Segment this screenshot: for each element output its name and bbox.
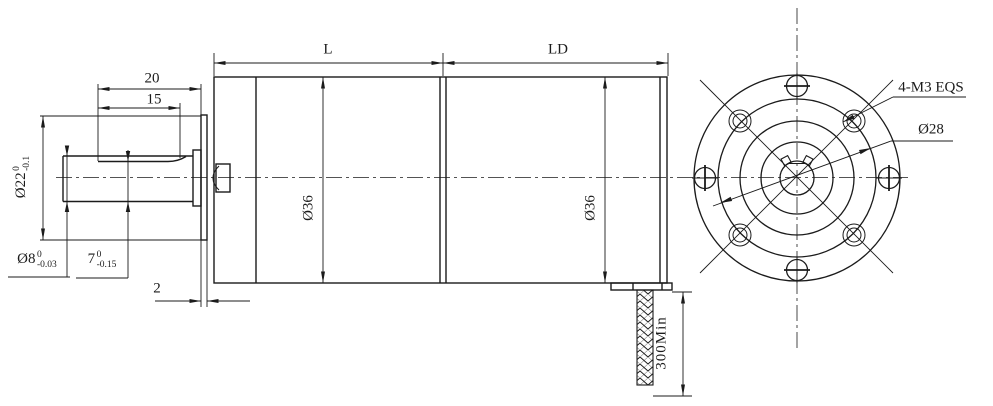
dim-label-15: 15 xyxy=(147,93,162,108)
dim-label-LD: LD xyxy=(548,43,568,58)
screw-bottom xyxy=(784,257,810,283)
dim-label-2: 2 xyxy=(153,282,161,297)
dim-label-dia36-gear: Ø36 xyxy=(302,195,317,221)
side-view-dimensions xyxy=(8,53,692,396)
bearing-dome xyxy=(213,164,230,192)
dim-label-dia8: Ø80-0.03 xyxy=(17,250,57,270)
shaft-washer xyxy=(193,150,201,206)
rear-terminal-block xyxy=(611,283,672,290)
dim-label-300min: 300Min xyxy=(655,316,670,370)
engineering-drawing-gearmotor: L LD 20 15 2 Ø220-0.1 Ø80-0.03 70-0.15 Ø… xyxy=(0,0,993,406)
screw-right xyxy=(876,165,902,191)
label-4-m3-eqs: 4-M3 EQS xyxy=(898,81,963,96)
screw-top xyxy=(784,73,810,99)
drawing-canvas xyxy=(0,0,993,406)
diagonal-construction-lines xyxy=(700,80,893,273)
side-view xyxy=(63,77,672,385)
dim-label-dia22: Ø220-0.1 xyxy=(12,156,32,198)
dia22-sub: -0.1 xyxy=(23,156,33,171)
shaft-flat xyxy=(98,157,186,162)
dia8-sub: -0.03 xyxy=(37,261,57,271)
dia8-base: Ø8 xyxy=(17,253,35,268)
flat7-sub: -0.15 xyxy=(97,261,117,271)
flat7-base: 7 xyxy=(88,253,96,268)
dim-label-L: L xyxy=(323,43,332,58)
lead-wire-cable xyxy=(637,290,653,385)
dia22-base: Ø22 xyxy=(15,172,30,198)
dim-label-dia36-motor: Ø36 xyxy=(584,195,599,221)
dim-label-flat7: 70-0.15 xyxy=(88,250,117,270)
dim-label-20: 20 xyxy=(145,72,160,87)
label-dia28: Ø28 xyxy=(918,123,944,138)
screw-left xyxy=(692,165,718,191)
